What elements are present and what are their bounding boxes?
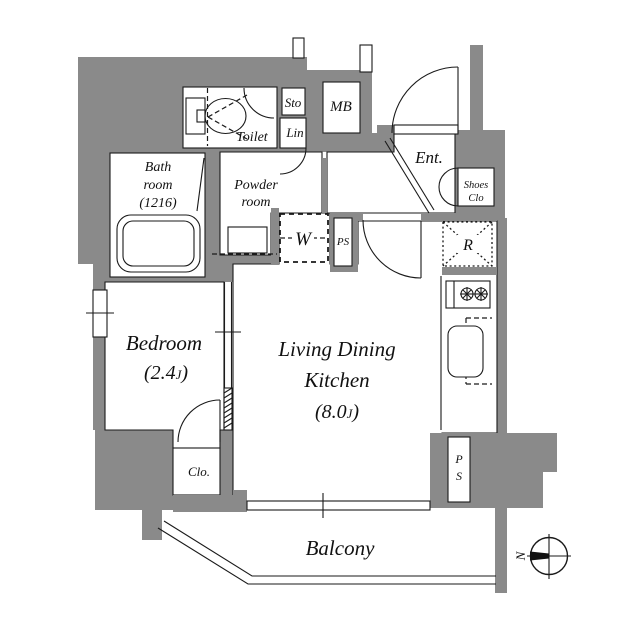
bathroom-label: room [143,178,172,193]
bedroom-ldk-partition [224,282,232,388]
bathroom-label: Bath [145,160,171,175]
shoes-closet-label: Clo [468,193,483,204]
refrigerator-label: R [462,237,473,254]
north-compass-icon [527,534,571,579]
meter-box-label: MB [329,99,352,115]
washer-label: W [295,229,313,250]
bathroom-label: (1216) [139,196,177,211]
stove-icon [446,281,490,308]
kitchen-sink-icon [448,326,483,377]
balcony-window [247,501,430,510]
floor-plan-drawing: Toilet Sto Lin MB Ent. Shoes Clo Bath ro… [0,0,640,640]
linen-label: Lin [285,125,303,140]
pipe-space-lower-label: P [454,452,463,466]
toilet-label: Toilet [236,130,268,145]
floor-plan: Toilet Sto Lin MB Ent. Shoes Clo Bath ro… [0,0,640,640]
powder-room-label: Powder [233,178,278,193]
balcony-label: Balcony [306,536,375,560]
ldk-label: Living Dining [277,337,395,361]
powder-room-label: room [241,195,270,210]
entrance-label: Ent. [414,148,443,167]
pipe-space-lower-label: S [456,469,462,483]
storage-label: Sto [285,95,302,110]
wall-notch [360,45,372,72]
shoes-closet-label: Shoes [464,180,489,191]
sliding-door-hatch [224,388,232,430]
north-label: N [513,550,528,561]
entrance-doorway-sill [394,125,458,134]
closet-label: Clo. [188,464,210,479]
ldk-area-label: (8.0J) [315,401,359,423]
pipe-space-upper-label: PS [336,236,350,248]
ldk-label: Kitchen [303,368,369,392]
bedroom-label: Bedroom [126,331,202,355]
bedroom-area-label: (2.4J) [144,362,188,384]
front-door-arc [392,67,458,133]
wall-notch [293,38,304,58]
